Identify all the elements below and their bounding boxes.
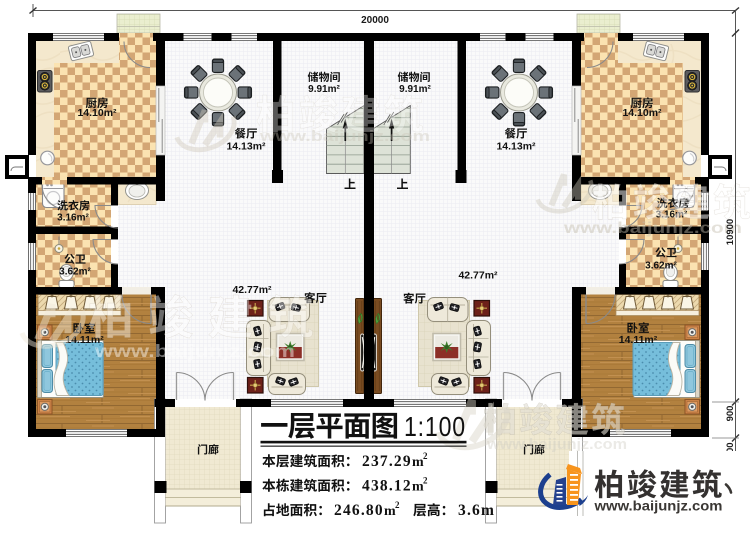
svg-text:42.77m²: 42.77m² [232,284,272,296]
svg-text:2: 2 [423,476,428,486]
svg-text:3.62m²: 3.62m² [59,267,91,278]
svg-text:2: 2 [423,451,428,461]
svg-text:42.77m²: 42.77m² [458,269,498,281]
svg-text:9.91m²: 9.91m² [399,84,431,95]
svg-text:1:100: 1:100 [404,411,466,442]
svg-text:www.baijunjz.com: www.baijunjz.com [593,499,722,514]
svg-text:20000: 20000 [361,15,389,26]
svg-text:3.6m: 3.6m [458,502,495,519]
svg-text:14.11m²: 14.11m² [619,334,658,346]
svg-text:900: 900 [725,406,736,422]
svg-text:www.baijunjz.com: www.baijunjz.com [563,220,742,237]
svg-text:3.16m²: 3.16m² [57,213,89,224]
svg-text:2: 2 [395,500,400,510]
svg-text:237.29: 237.29 [362,453,412,470]
svg-text:438.12: 438.12 [362,478,412,495]
svg-text:14.10m²: 14.10m² [77,107,117,119]
svg-text:www.baijunjz.com: www.baijunjz.com [259,129,430,145]
svg-text:14.13m²: 14.13m² [496,140,536,152]
svg-text:3.62m²: 3.62m² [645,261,677,272]
svg-text:www.baijunjz.com: www.baijunjz.com [94,341,295,361]
svg-text:246.80: 246.80 [334,502,384,519]
svg-text:9.91m²: 9.91m² [308,84,340,95]
svg-text:10900: 10900 [725,219,736,245]
svg-text:www.baijunjz.com: www.baijunjz.com [486,436,627,453]
svg-text:14.10m²: 14.10m² [622,107,662,119]
